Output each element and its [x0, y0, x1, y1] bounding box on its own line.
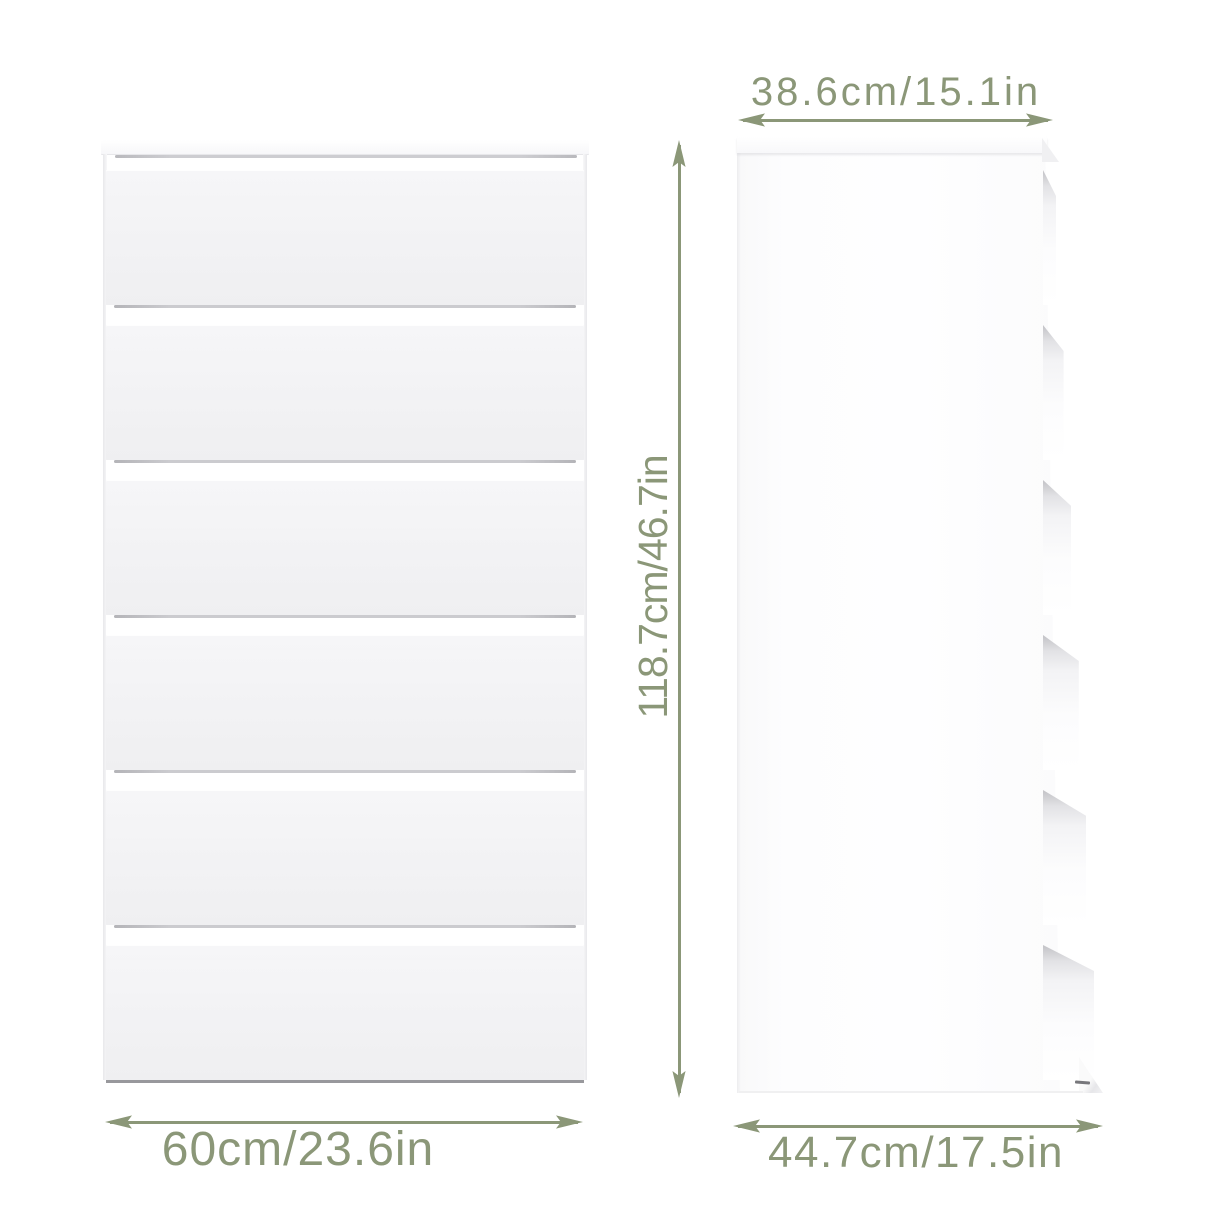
front-view [103, 140, 587, 1095]
side-drawer-edge [1043, 790, 1086, 925]
drawer-face [106, 480, 584, 615]
drawer-face [106, 325, 584, 460]
front-top-shadow-line [115, 155, 577, 158]
side-drawer-edge [1043, 325, 1064, 460]
drawer-face [106, 945, 584, 1080]
drawer-gap [106, 925, 584, 945]
side-top-surface [737, 137, 1047, 153]
side-drawer-edge [1043, 480, 1071, 615]
arrow-line [678, 145, 681, 1093]
arrow-line [743, 119, 1048, 122]
side-drawer-edge [1043, 170, 1056, 305]
depth-label: 44.7cm/17.5in [716, 1128, 1116, 1178]
front-top-panel [101, 140, 589, 154]
side-width-label: 38.6cm/15.1in [696, 70, 1096, 115]
drawer-face [106, 635, 584, 770]
drawer-gap [106, 770, 584, 790]
side-drawer-edge [1043, 635, 1079, 770]
front-width-label: 60cm/23.6in [98, 1122, 498, 1177]
drawer-gap [106, 305, 584, 325]
drawer-face [106, 170, 584, 305]
side-drawer-edge [1043, 945, 1094, 1080]
dimension-diagram: 38.6cm/15.1in 118.7cm/46.7in 60cm/23.6in… [0, 0, 1214, 1214]
front-base-strip [106, 1080, 584, 1095]
drawer-gap [106, 460, 584, 480]
side-bottom-line [739, 1091, 1083, 1093]
side-width-arrow [738, 113, 1053, 127]
drawer-face [106, 790, 584, 925]
drawer-gap [106, 615, 584, 635]
height-arrow [672, 140, 686, 1098]
side-panel [737, 139, 1060, 1093]
side-view [737, 137, 1107, 1095]
side-view-strips [1043, 137, 1107, 1095]
height-label: 118.7cm/46.7in [628, 387, 678, 787]
